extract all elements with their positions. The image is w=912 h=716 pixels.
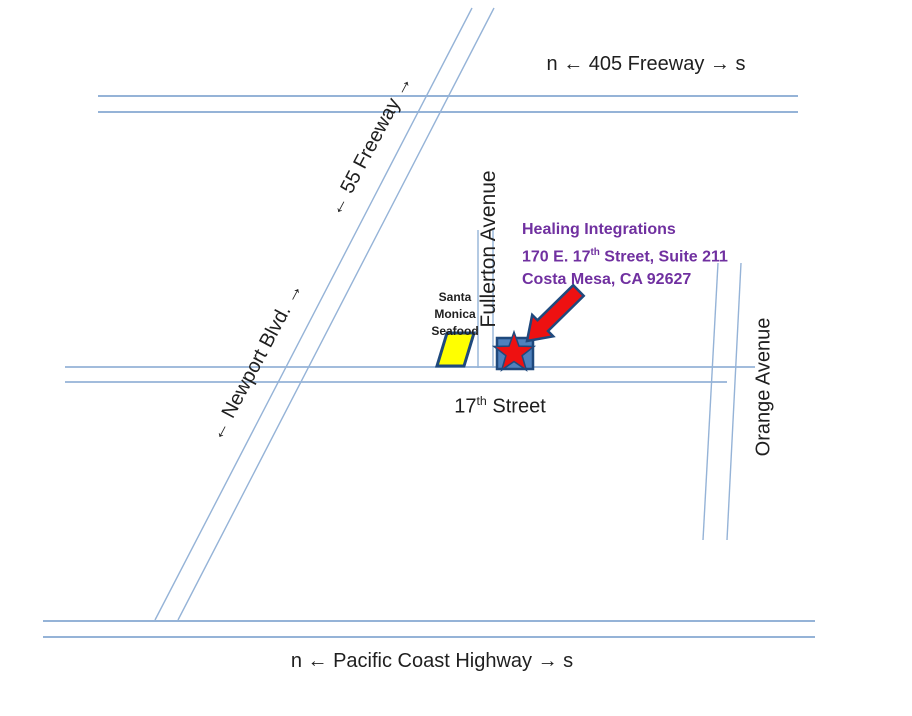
landmark-label: Santa Monica Seafood bbox=[431, 289, 478, 340]
destination-arrow-icon bbox=[527, 285, 584, 341]
road-17th-street bbox=[65, 367, 755, 382]
destination-city: Costa Mesa, CA 92627 bbox=[522, 268, 728, 291]
landmark-label-line3: Seafood bbox=[431, 323, 478, 340]
label-pacific-coast-highway: n ← Pacific Coast Highway → s bbox=[291, 650, 573, 673]
destination-street-post: Street, Suite 211 bbox=[600, 248, 728, 265]
road-pacific-coast-highway bbox=[43, 621, 815, 637]
directions-map: n ← 405 Freeway → s ← 55 Freeway → ← New… bbox=[0, 0, 912, 716]
destination-address-block: Healing Integrations 170 E. 17th Street,… bbox=[522, 218, 728, 291]
label-17th-street-sup: th bbox=[476, 394, 486, 408]
label-fullerton-avenue: Fullerton Avenue bbox=[477, 170, 501, 327]
label-17th-street: 17th Street bbox=[454, 394, 546, 419]
label-17th-street-rest: Street bbox=[487, 396, 546, 418]
road-orange-avenue bbox=[703, 263, 741, 540]
label-17th-street-number: 17 bbox=[454, 396, 476, 418]
destination-street: 170 E. 17th Street, Suite 211 bbox=[522, 241, 728, 268]
landmark-label-line2: Monica bbox=[431, 306, 478, 323]
label-405-freeway: n ← 405 Freeway → s bbox=[547, 53, 746, 76]
destination-street-pre: 170 E. 17 bbox=[522, 248, 591, 265]
destination-street-sup: th bbox=[591, 247, 600, 258]
landmark-label-line1: Santa bbox=[431, 289, 478, 306]
destination-name: Healing Integrations bbox=[522, 218, 728, 241]
label-orange-avenue: Orange Avenue bbox=[753, 318, 776, 457]
